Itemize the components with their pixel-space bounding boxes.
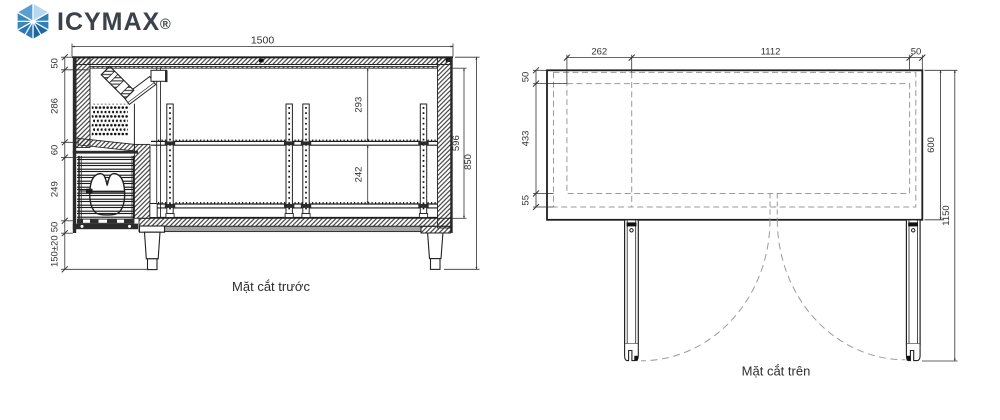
svg-text:1112: 1112 bbox=[761, 47, 781, 58]
svg-text:850: 850 bbox=[463, 154, 474, 170]
svg-text:ICYMAX: ICYMAX bbox=[57, 8, 160, 36]
svg-text:286: 286 bbox=[50, 98, 61, 114]
svg-text:433: 433 bbox=[521, 131, 532, 147]
svg-text:249: 249 bbox=[50, 181, 61, 197]
svg-text:150±20: 150±20 bbox=[50, 235, 61, 267]
svg-text:293: 293 bbox=[354, 97, 365, 113]
svg-text:242: 242 bbox=[354, 167, 365, 183]
svg-text:60: 60 bbox=[50, 145, 61, 156]
svg-text:50: 50 bbox=[50, 58, 61, 69]
svg-text:55: 55 bbox=[521, 195, 532, 206]
svg-text:596: 596 bbox=[451, 135, 462, 151]
svg-text:Mặt cắt trước: Mặt cắt trước bbox=[232, 279, 310, 294]
svg-text:50: 50 bbox=[521, 72, 532, 83]
svg-text:600: 600 bbox=[926, 137, 937, 153]
svg-text:50: 50 bbox=[50, 222, 61, 233]
svg-text:1500: 1500 bbox=[251, 34, 275, 46]
svg-text:50: 50 bbox=[911, 47, 922, 58]
svg-text:262: 262 bbox=[591, 47, 607, 58]
svg-text:®: ® bbox=[160, 17, 171, 33]
svg-text:1150: 1150 bbox=[941, 205, 952, 225]
svg-text:Mặt cắt trên: Mặt cắt trên bbox=[742, 364, 811, 379]
